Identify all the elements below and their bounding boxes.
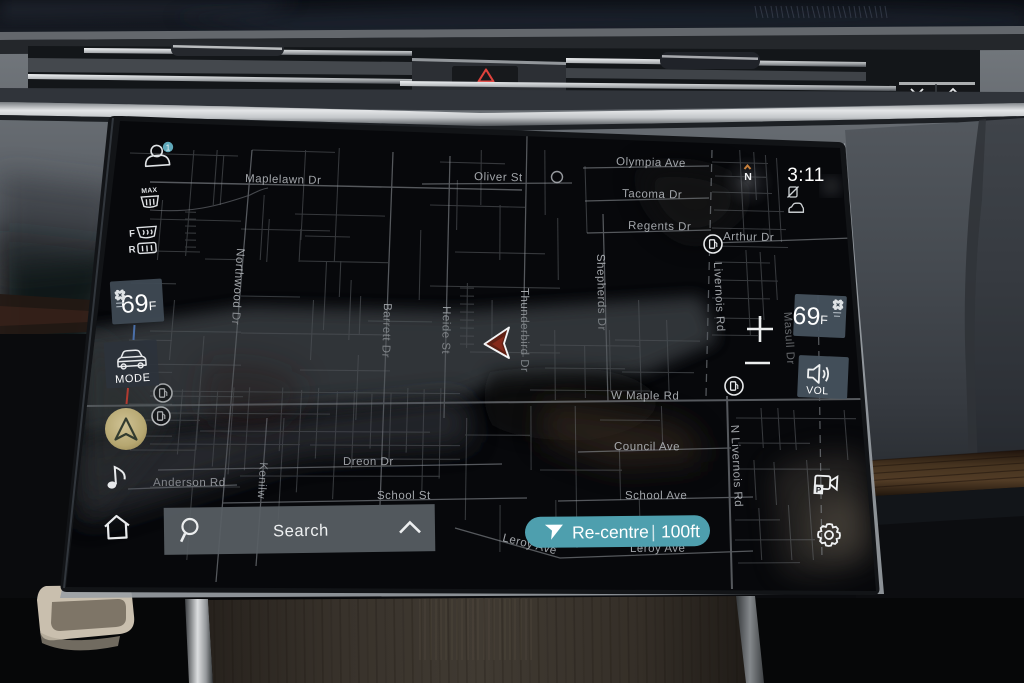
svg-text:Re-centre: Re-centre <box>572 522 649 543</box>
svg-text:School St: School St <box>377 490 431 502</box>
svg-text:Oliver St: Oliver St <box>474 171 523 184</box>
svg-text:F: F <box>129 228 136 239</box>
svg-text:Dreon Dr: Dreon Dr <box>343 456 394 468</box>
svg-text:Arthur Dr: Arthur Dr <box>723 231 774 244</box>
svg-text:Regents Dr: Regents Dr <box>628 220 691 233</box>
svg-text:MODE: MODE <box>115 372 151 386</box>
svg-text:1: 1 <box>166 143 171 153</box>
svg-text:3:11: 3:11 <box>787 165 825 186</box>
svg-text:R: R <box>128 244 136 255</box>
svg-text:Search: Search <box>273 522 329 541</box>
svg-text:School Ave: School Ave <box>625 490 687 502</box>
svg-text:100ft: 100ft <box>661 521 700 541</box>
svg-text:W Maple Rd: W Maple Rd <box>611 390 679 403</box>
svg-text:Maplelawn Dr: Maplelawn Dr <box>245 173 322 187</box>
svg-text:Council Ave: Council Ave <box>614 441 680 453</box>
svg-text:Tacoma Dr: Tacoma Dr <box>622 188 682 201</box>
svg-text:Kenilw: Kenilw <box>255 462 269 500</box>
svg-text:Olympia Ave: Olympia Ave <box>616 156 686 170</box>
svg-text:MAX: MAX <box>141 187 158 195</box>
svg-text:|: | <box>651 522 656 542</box>
svg-text:N: N <box>744 171 752 183</box>
svg-text:VOL: VOL <box>806 384 829 397</box>
